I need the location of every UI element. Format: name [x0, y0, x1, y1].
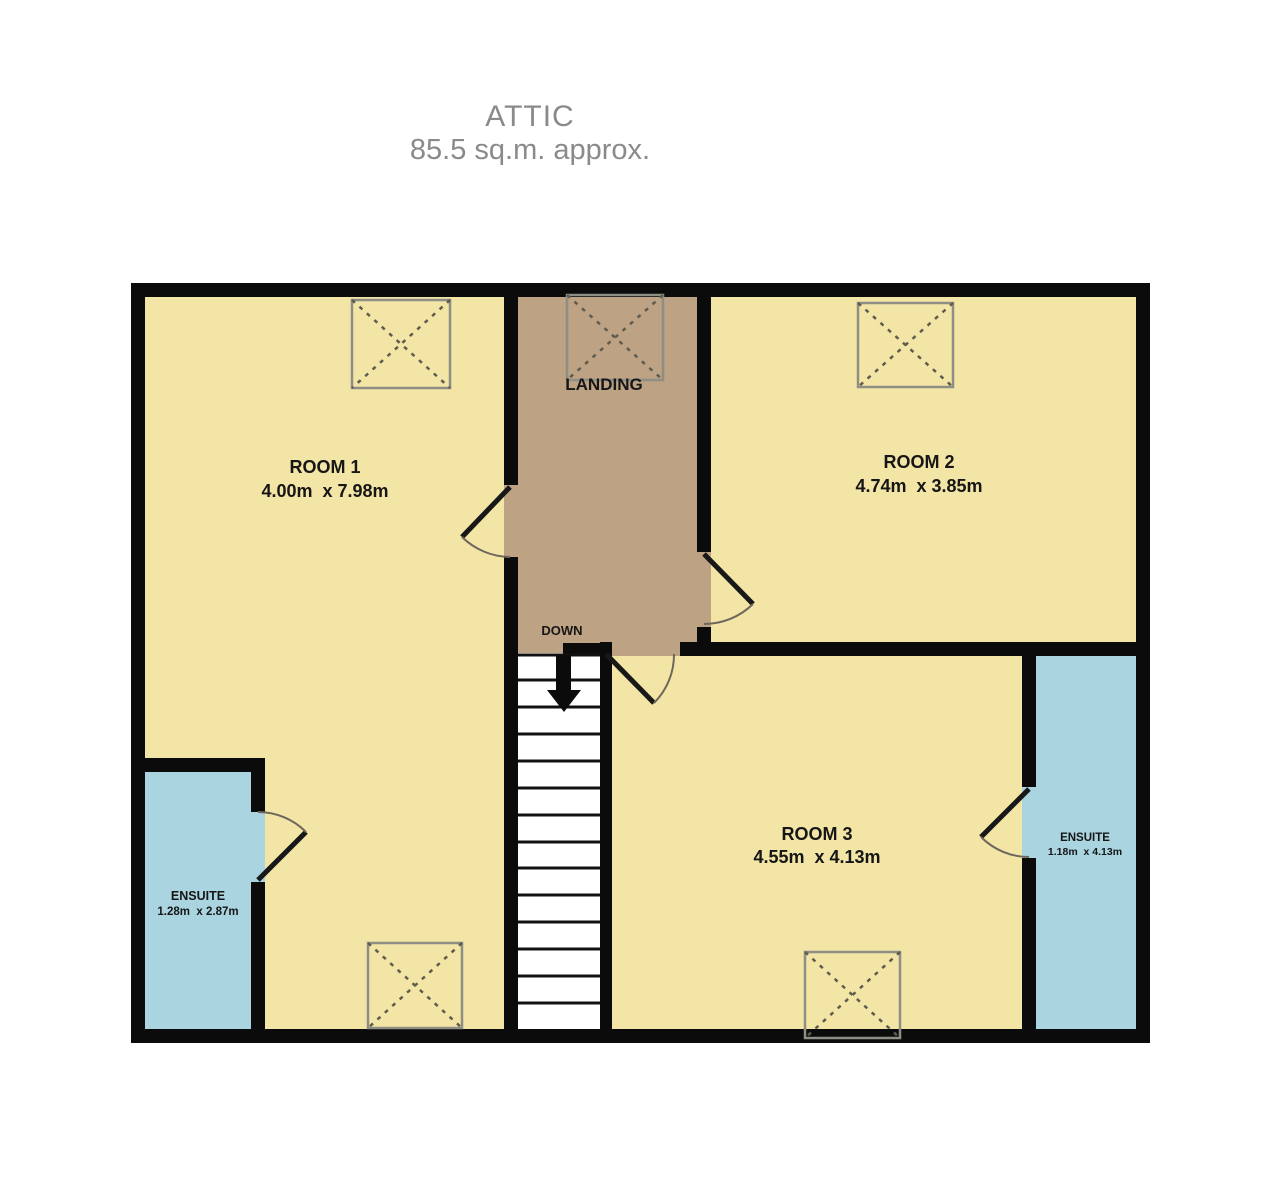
down-label: DOWN	[541, 623, 582, 638]
wall-room1-stairs-lower	[504, 557, 518, 1029]
threshold-room1-door	[504, 485, 518, 557]
landing-area	[518, 297, 697, 653]
ensuite2-dims: 1.18m x 4.13m	[1048, 846, 1122, 858]
room2-label: ROOM 2	[883, 452, 954, 472]
floor-plan-svg: LANDING DOWN ROOM 1 4.00m x 7.98m ROOM 2…	[131, 283, 1150, 1043]
ensuite1-label: ENSUITE	[171, 889, 225, 903]
page-title: ATTIC	[170, 100, 890, 134]
landing-label: LANDING	[565, 375, 642, 394]
wall-room1-landing-upper	[504, 297, 518, 485]
wall-room2-room3	[680, 642, 1136, 656]
room1-dims: 4.00m x 7.98m	[261, 481, 388, 501]
page-subtitle: 85.5 sq.m. approx.	[170, 134, 890, 167]
threshold-ensuite1-door	[251, 812, 265, 882]
wall-landing-room2-upper	[697, 297, 711, 552]
room3-label: ROOM 3	[781, 824, 852, 844]
wall-room3-ensuite2-upper	[1022, 656, 1036, 787]
wall-ensuite1-top	[131, 758, 265, 772]
wall-stairs-room3	[600, 642, 612, 1029]
wall-ensuite1-right-upper	[251, 772, 265, 812]
threshold-room3-door	[612, 643, 680, 656]
threshold-ensuite2-door	[1022, 787, 1036, 858]
ensuite1-dims: 1.28m x 2.87m	[157, 906, 238, 918]
threshold-room2-door	[697, 552, 711, 627]
wall-room3-ensuite2-lower	[1022, 858, 1036, 1029]
room2-dims: 4.74m x 3.85m	[855, 476, 982, 496]
room1-label: ROOM 1	[289, 457, 360, 477]
floorplan-page: ATTIC 85.5 sq.m. approx.	[0, 0, 1280, 1177]
room3-dims: 4.55m x 4.13m	[753, 847, 880, 867]
wall-ensuite1-right-lower	[251, 882, 265, 1029]
plan-header: ATTIC 85.5 sq.m. approx.	[170, 100, 890, 167]
ensuite2-label: ENSUITE	[1060, 832, 1110, 844]
